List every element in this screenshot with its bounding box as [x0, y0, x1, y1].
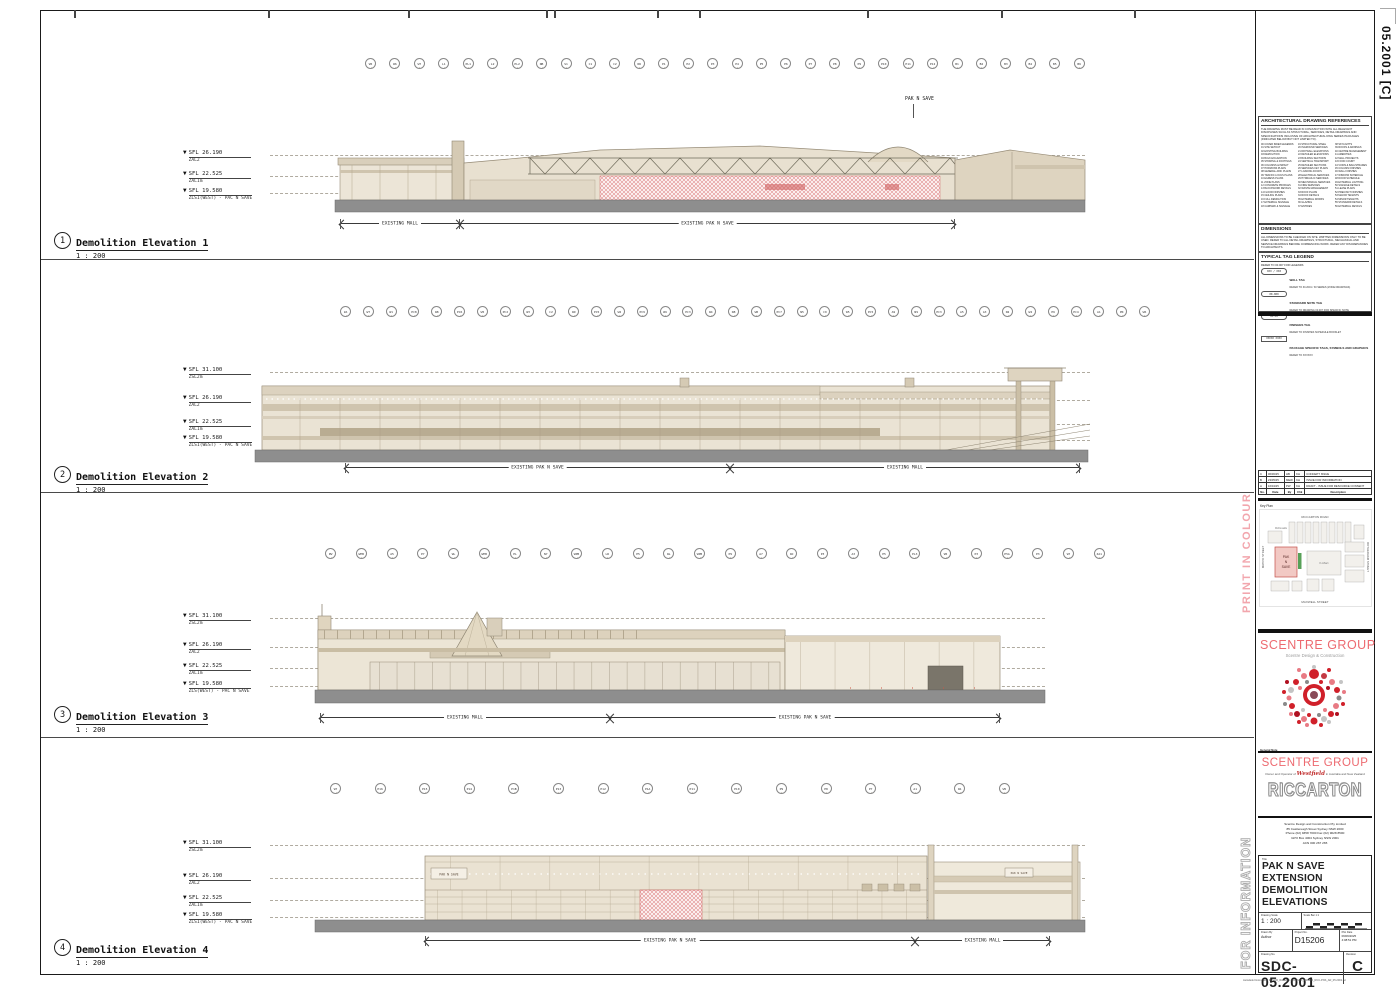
paknsave-sign-text: PAK N SAVE	[439, 873, 458, 877]
level-triangle-icon: ▼	[183, 642, 187, 648]
grid-bubble: L2	[487, 58, 498, 69]
view-scale: 1 : 200	[76, 486, 208, 494]
dim-tick	[954, 219, 955, 229]
grid-bubble: A3	[848, 548, 859, 559]
file-path-footer: Autodesk Docs://SDC D15206_Riccarton PNS…	[1243, 979, 1346, 982]
revision-row: No.DateByChkDescription	[1259, 489, 1372, 495]
grid-bubble: P13	[553, 783, 564, 794]
grid-bubble: A9	[888, 306, 899, 317]
scentre-group-logo: SCENTRE GROUP	[1260, 638, 1370, 652]
grid-bubble: ZA	[340, 306, 351, 317]
revision-cell: No.	[1259, 489, 1267, 495]
grid-bubble: N6	[634, 58, 645, 69]
level-triangle-icon: ▼	[183, 613, 187, 619]
grid-bubble: B3	[1000, 58, 1011, 69]
grid-bubble: C2	[609, 58, 620, 69]
level-marker: ▼ SFL 19.580 ZLS1(WEST) - PAC N SAVE	[183, 188, 252, 201]
references-list: 00 COVER INDEX/LEGENDS01 SITE SETOUT02 E…	[1261, 143, 1369, 208]
view-title: Demolition Elevation 3	[76, 712, 208, 725]
level-name: ZLS1(WEST) - PAC N SAVE	[189, 920, 253, 925]
dimension-label: EXISTING PAK N SAVE	[508, 465, 567, 470]
level-name: ZAL2	[189, 403, 251, 408]
view-title: Demolition Elevation 2	[76, 472, 208, 485]
registration-tick	[1134, 10, 1136, 18]
street-label-top: RICCARTON ROAD	[1301, 515, 1329, 519]
level-marker: ▼ SFL 19.580 ZLS(WEST) - PAC N SAVE	[183, 681, 251, 694]
registration-tick	[867, 10, 869, 18]
grid-bubble: W5	[999, 783, 1010, 794]
level-name: ZLS1(WEST) - PAC N SAVE	[189, 443, 253, 448]
elevation-3-title: 3 Demolition Elevation 3 1 : 200	[54, 705, 208, 734]
level-triangle-icon: ▼	[183, 395, 187, 401]
dimensions-note-section: DIMENSIONS ALL DIMENSIONS TO BE CHECKED …	[1258, 224, 1372, 252]
level-name: ZSL2m	[189, 375, 251, 380]
grid-bubble: W1	[386, 306, 397, 317]
level-marker: ▼ SFL 26.190 ZAL2	[183, 150, 251, 163]
level-triangle-icon: ▼	[183, 150, 187, 156]
registration-tick	[1001, 10, 1003, 18]
note-tag-icon: 00-000	[1261, 291, 1287, 298]
tag-desc: REFER TO FINISHES SCHEDULE BOOKLET	[1290, 331, 1342, 334]
grid-bubble: PC3	[682, 306, 693, 317]
grid-bubble: W6	[660, 306, 671, 317]
company-line: ACN 000 267 265	[1260, 841, 1370, 846]
registration-tick	[554, 10, 556, 18]
reference-item: 56 EXTERNAL DETAILS	[1335, 205, 1369, 208]
grid-bubble: P5	[879, 548, 890, 559]
tag-name: WALL TAG	[1290, 278, 1305, 282]
grid-bubble: A5	[956, 306, 967, 317]
wall-tag-icon: XXX / XXX	[1261, 268, 1287, 275]
view-scale: 1 : 200	[76, 959, 208, 967]
grid-bubble: N9	[911, 306, 922, 317]
level-name: ZSL2m	[189, 621, 251, 626]
grid-bubble: P12	[927, 58, 938, 69]
level-triangle-icon: ▼	[183, 367, 187, 373]
grid-bubble: PL1	[463, 58, 474, 69]
tag-name: STANDARD NOTE TAG	[1290, 301, 1323, 305]
level-triangle-icon: ▼	[183, 435, 187, 441]
ground-line	[315, 690, 1045, 703]
key-plan-label: Key Plan	[1260, 504, 1370, 508]
section-divider-bar	[1258, 629, 1372, 633]
tag-legend-item: XXX / XXX WALL TAG REFER TO 30.2001 / 30…	[1261, 268, 1369, 289]
annotation-leader	[913, 104, 914, 118]
elevation-2-title: 2 Demolition Elevation 2 1 : 200	[54, 465, 208, 494]
elevation-1-drawing	[325, 128, 1090, 214]
grid-bubble: P6	[1048, 306, 1059, 317]
view-title: Demolition Elevation 1	[76, 238, 208, 251]
tagline-pre: Owner and Operator of	[1265, 772, 1296, 776]
revision-label: Revision	[1346, 953, 1369, 956]
grid-bubble: PC9	[637, 306, 648, 317]
sheet-edge-label: 05.2001 [C]	[1379, 26, 1393, 100]
level-name: ZAL1m	[189, 903, 251, 908]
grid-bubble: PC5	[591, 306, 602, 317]
grid-bubble: C9	[819, 306, 830, 317]
grid-bubble: WC	[786, 548, 797, 559]
street-label-left: MATIPO STREET	[1261, 546, 1265, 569]
grid-bubble: S1	[561, 58, 572, 69]
view-number-bubble: 4	[54, 939, 71, 956]
section-divider-bar	[1258, 751, 1372, 753]
ground-line	[255, 450, 1088, 462]
grid-bubble: W7	[414, 58, 425, 69]
level-name: ZAL2	[189, 650, 251, 655]
grid-bubble: B4	[1025, 58, 1036, 69]
level-sfl: SFL 31.100	[189, 367, 251, 375]
level-sfl: SFL 31.100	[189, 613, 251, 621]
elevation-2-drawing	[248, 358, 1096, 466]
level-name: ZAL2	[189, 881, 251, 886]
grid-bubble: P3	[707, 58, 718, 69]
grid-bubble: PC3	[934, 306, 945, 317]
drawn-by-label: Drawn By	[1261, 931, 1290, 934]
pns-label: PAK	[1283, 555, 1290, 559]
extension-marker	[1298, 553, 1302, 569]
grid-bubble: B6	[1074, 58, 1085, 69]
drawn-by-value: Author	[1261, 935, 1290, 939]
level-triangle-icon: ▼	[183, 873, 187, 879]
grid-bubble: P4	[732, 58, 743, 69]
key-plan-map: RICCARTON ROAD MAXWELL STREET MATIPO STR…	[1259, 509, 1372, 607]
grid-bubble-row: W5W6W7L1PL1L2PL2NBS1C1C2N6P1P2P3P4P5P6P7…	[365, 58, 1085, 69]
revision-value: C	[1346, 958, 1369, 975]
grid-bubble: WPB	[356, 548, 367, 559]
grid-bubble-row: PWWPBA5P7WLWPBPLN7WPBLRP5WLWPBP9A7WCP3A3…	[325, 548, 1105, 559]
references-intro: THE DRAWING MUST BE READ IN CONJUNCTION …	[1261, 128, 1369, 142]
grid-bubble: W7	[1063, 548, 1074, 559]
grid-bubble: PC2	[500, 306, 511, 317]
tag-name: PACKAGE SPECIFIC TAGS, SYMBOLS AND GRAPH…	[1290, 346, 1369, 350]
reference-item: 18 CARPARK & SIGNAGE	[1261, 205, 1295, 208]
riccarton-logo: RICCARTON	[1260, 780, 1370, 800]
level-marker: ▼ SFL 26.190 ZAL2	[183, 642, 251, 655]
grid-bubble-row: ZAW7W1PC8W8PC6W5PC2W3C2W9PC5W2PC9W6PC3W4…	[340, 306, 1150, 317]
grid-bubble: W4	[1025, 306, 1036, 317]
dimension-existing-paknsave: EXISTING PAK N SAVE	[610, 717, 1000, 718]
grid-bubble: W5	[940, 548, 951, 559]
level-triangle-icon: ▼	[183, 681, 187, 687]
dome-roof	[868, 147, 928, 162]
sheet-title-line: ELEVATIONS	[1262, 897, 1368, 909]
grid-bubble: W5	[365, 58, 376, 69]
for-information-stamp: FOR INFORMATION	[1239, 837, 1253, 969]
street-label-right: ROTHERHAM STREET	[1366, 542, 1370, 572]
scale-bar	[1304, 922, 1368, 930]
scale-value: 1 : 200	[1261, 918, 1299, 925]
scentre-group-block: SCENTRE GROUP Scentre Design & Construct…	[1258, 636, 1372, 660]
grid-bubble: P16	[375, 783, 386, 794]
dim-tick	[425, 936, 426, 946]
grid-bubble: PL	[510, 548, 521, 559]
grid-bubble: WL	[663, 548, 674, 559]
company-address-block: Scentre Design and Construction Pty Limi…	[1258, 820, 1372, 847]
grid-bubble: N2	[1002, 306, 1013, 317]
level-name: ZLS(WEST) - PAC N SAVE	[189, 689, 251, 694]
section-divider-bar	[1258, 312, 1372, 316]
grid-bubble: ZA1	[1094, 548, 1105, 559]
grid-bubble: W6	[389, 58, 400, 69]
scale-label: Drawing Scale	[1261, 914, 1299, 917]
view-scale: 1 : 200	[76, 252, 208, 260]
grid-bubble: B1	[952, 58, 963, 69]
grid-bubble: PR	[1116, 306, 1127, 317]
grid-bubble: PL3	[909, 548, 920, 559]
dimension-label: EXISTING MALL	[962, 938, 1004, 943]
pak-n-save-annotation: PAK N SAVE	[905, 97, 934, 102]
registration-tick	[74, 10, 76, 18]
level-triangle-icon: ▼	[183, 188, 187, 194]
level-sfl: SFL 26.190	[189, 150, 251, 158]
corner-mark	[1380, 8, 1396, 24]
level-sfl: SFL 31.100	[189, 840, 251, 848]
panel-separator	[41, 492, 1254, 493]
grid-bubble: N7	[540, 548, 551, 559]
plot-time: 4:08:51 PM	[1342, 938, 1357, 942]
grid-bubble: PC6	[454, 306, 465, 317]
view-scale: 1 : 200	[76, 726, 208, 734]
references-heading: ARCHITECTURAL DRAWING REFERENCES	[1261, 119, 1369, 126]
dimension-label: EXISTING PAK N SAVE	[641, 938, 700, 943]
dim-tick	[1079, 463, 1080, 473]
grid-bubble: W2	[614, 306, 625, 317]
dimension-existing-mall: EXISTING MALL	[340, 223, 460, 224]
registration-tick	[657, 10, 659, 18]
dimension-label: EXISTING MALL	[884, 465, 926, 470]
grid-bubble: W4	[705, 306, 716, 317]
print-in-colour-text: PRINT IN COLOUR	[1241, 493, 1253, 613]
view-number-bubble: 3	[54, 706, 71, 723]
level-triangle-icon: ▼	[183, 895, 187, 901]
registration-tick	[546, 10, 548, 18]
dimension-label: EXISTING PAK N SAVE	[678, 221, 737, 226]
tag-name: FINISHES TAG	[1290, 323, 1311, 327]
level-name: ZAL1m	[189, 179, 251, 184]
grid-bubble: P1	[658, 58, 669, 69]
grid-bubble: W6	[1139, 306, 1150, 317]
level-name: ZLS1(WEST) - PAC N SAVE	[189, 196, 253, 201]
grid-bubble: P7	[865, 783, 876, 794]
grid-bubble: P7	[417, 548, 428, 559]
level-marker: ▼ SFL 31.100 ZSL2m	[183, 367, 251, 380]
grid-bubble: P15	[419, 783, 430, 794]
grid-bubble: P5	[633, 548, 644, 559]
level-name: ZAL2	[189, 158, 251, 163]
grid-bubble: N8	[728, 306, 739, 317]
dimension-existing-mall: EXISTING MALL	[915, 940, 1050, 941]
pns-label: SAVE	[1282, 565, 1292, 569]
grid-bubble: P9	[854, 58, 865, 69]
grid-bubble: PL2	[512, 58, 523, 69]
grid-bubble: WPB	[479, 548, 490, 559]
grid-bubble: P1B	[508, 783, 519, 794]
grid-bubble: W0	[751, 306, 762, 317]
kmart-label: K-Mart	[1320, 561, 1329, 565]
level-name: ZAL1m	[189, 671, 251, 676]
tag-legend-section: TYPICAL TAG LEGEND REFER TO 00.007 FOR L…	[1258, 252, 1372, 312]
revision-cell: Description	[1305, 489, 1372, 495]
dimension-existing-mall: EXISTING MALL	[320, 717, 610, 718]
grid-bubble: W9	[568, 306, 579, 317]
tag-legend-item: 00-000 STANDARD NOTE TAG REFER TO DRAWIN…	[1261, 291, 1369, 312]
level-sfl: SFL 19.580	[189, 188, 253, 196]
grid-bubble: WPB	[571, 548, 582, 559]
grid-bubble: PC7	[774, 306, 785, 317]
dim-tick	[345, 463, 346, 473]
elevation-3-drawing	[288, 602, 1050, 706]
grid-bubble: P12	[598, 783, 609, 794]
revision-table: C06/06/25HBKHCONCEPT ISSUEB23/05/25MEWKH…	[1258, 470, 1372, 495]
title-block: Title PAK N SAVE EXTENSION DEMOLITION EL…	[1258, 855, 1372, 973]
grid-bubble-row: W7P16P15P14P1BP13P12P1AP11P10P9P8P7A1W1W…	[330, 783, 1010, 794]
panel-separator	[41, 737, 1254, 738]
level-sfl: SFL 19.580	[189, 912, 253, 920]
grid-bubble: NB	[536, 58, 547, 69]
grid-bubble: P6	[780, 58, 791, 69]
level-marker: ▼ SFL 26.190 ZAL2	[183, 873, 251, 886]
dimensions-text: ALL DIMENSIONS TO BE CHECKED ON SITE. WR…	[1261, 236, 1369, 250]
tag-legend-item: XX-XX FINISHES TAG REFER TO FINISHES SCH…	[1261, 313, 1369, 334]
dimension-label: EXISTING MALL	[444, 715, 486, 720]
level-sfl: SFL 22.525	[189, 663, 251, 671]
grid-bubble: P14	[464, 783, 475, 794]
revision-cell: By	[1284, 489, 1294, 495]
scentre-group-logo: SCENTRE GROUP	[1260, 757, 1370, 769]
level-marker: ▼ SFL 22.525 ZAL1m	[183, 171, 251, 184]
grid-bubble: PC5	[865, 306, 876, 317]
reference-item: 37 ENTRIES	[1298, 205, 1332, 208]
tag-desc: REFER TO 30.2001 / 30 SERIES (ZONE DRAWI…	[1290, 286, 1351, 289]
level-marker: ▼ SFL 31.100 ZSL2m	[183, 840, 251, 853]
tagline-post: in Australia and New Zealand	[1326, 772, 1365, 776]
level-triangle-icon: ▼	[183, 663, 187, 669]
dimensions-heading: DIMENSIONS	[1261, 227, 1369, 234]
dimension-label: EXISTING MALL	[379, 221, 421, 226]
dimension-existing-paknsave: EXISTING PAK N SAVE	[345, 467, 730, 468]
grid-bubble: L1	[438, 58, 449, 69]
ground-line	[315, 920, 1085, 932]
dim-tick	[320, 713, 321, 723]
grid-bubble: P5	[756, 58, 767, 69]
dimension-existing-paknsave: EXISTING PAK N SAVE	[425, 940, 915, 941]
grid-bubble: W8	[431, 306, 442, 317]
section-divider-bar	[1258, 498, 1372, 501]
panel-separator	[41, 259, 1254, 260]
grid-bubble: P1A	[642, 783, 653, 794]
street-label-bottom: MAXWELL STREET	[1301, 600, 1328, 604]
grid-bubble: W5	[842, 306, 853, 317]
westfield-logo: Westfield	[1297, 771, 1325, 777]
sheet-title-line: DEMOLITION	[1262, 885, 1368, 897]
demolition-hatch	[640, 890, 702, 920]
dimension-label: EXISTING PAK N SAVE	[776, 715, 835, 720]
grid-bubble: A1	[910, 783, 921, 794]
level-sfl: SFL 22.525	[189, 171, 251, 179]
level-triangle-icon: ▼	[183, 419, 187, 425]
drawing-no-label: Drawing No.	[1261, 953, 1341, 956]
colour-test-logo	[1279, 660, 1351, 734]
grid-bubble: PC8	[408, 306, 419, 317]
view-number-bubble: 2	[54, 466, 71, 483]
tag-desc: REFER TO XXXXXX	[1290, 354, 1369, 357]
grid-bubble: PW	[325, 548, 336, 559]
scentre-sub-label: Scentre Design & Construction	[1260, 653, 1370, 658]
bullseye-center	[1310, 691, 1318, 699]
level-marker: ▼ SFL 26.190 ZAL2	[183, 395, 251, 408]
tag-legend-heading: TYPICAL TAG LEGEND	[1261, 255, 1369, 262]
grid-bubble: C1	[585, 58, 596, 69]
grid-bubble: P3	[971, 548, 982, 559]
level-sfl: SFL 22.525	[189, 419, 251, 427]
tag-legend-sub: REFER TO 00.007 FOR LEGENDS	[1261, 264, 1369, 268]
mall-sign-text: PAK N SAVE	[1011, 871, 1028, 875]
dimension-existing-mall: EXISTING MALL	[730, 467, 1080, 468]
revision-cell: Chk	[1295, 489, 1305, 495]
grid-bubble: A5	[387, 548, 398, 559]
elevation-1-title: 1 Demolition Elevation 1 1 : 200	[54, 231, 208, 260]
grid-bubble: P5A	[1002, 548, 1013, 559]
grid-bubble: P3	[817, 548, 828, 559]
level-sfl: SFL 26.190	[189, 395, 251, 403]
grid-bubble: WPB	[694, 548, 705, 559]
level-triangle-icon: ▼	[183, 171, 187, 177]
grid-bubble: W3	[523, 306, 534, 317]
grid-bubble: A7	[756, 548, 767, 559]
level-sfl: SFL 26.190	[189, 642, 251, 650]
grid-bubble: P11	[687, 783, 698, 794]
level-triangle-icon: ▼	[183, 840, 187, 846]
grid-bubble: W5	[477, 306, 488, 317]
scentre-westfield-block: SCENTRE GROUP Owner and Operator of West…	[1258, 755, 1372, 801]
mcdonalds-label: McDonalds	[1275, 527, 1288, 530]
grid-bubble: P10	[878, 58, 889, 69]
package-tag-icon: XXXXX XXXX	[1261, 336, 1287, 343]
scale-bar-label: Scale Bar 1:1	[1304, 914, 1369, 917]
drawing-no-value: SDC-05.2001	[1261, 958, 1341, 989]
level-marker: ▼ SFL 19.580 ZLS1(WEST) - PAC N SAVE	[183, 435, 252, 448]
level-marker: ▼ SFL 22.525 ZAL1m	[183, 895, 251, 908]
level-marker: ▼ SFL 22.525 ZAL1m	[183, 663, 251, 676]
sidebar: ARCHITECTURAL DRAWING REFERENCES THE DRA…	[1256, 10, 1375, 975]
registration-tick	[408, 10, 410, 18]
grid-bubble: N5	[797, 306, 808, 317]
grid-bubble: P3	[1032, 548, 1043, 559]
grid-bubble: P2	[683, 58, 694, 69]
revision-cell: Date	[1266, 489, 1284, 495]
tag-legend-item: XXXXX XXXX PACKAGE SPECIFIC TAGS, SYMBOL…	[1261, 336, 1369, 357]
grid-bubble: A3	[979, 306, 990, 317]
grid-bubble: B5	[1049, 58, 1060, 69]
level-marker: ▼ SFL 19.580 ZLS1(WEST) - PAC N SAVE	[183, 912, 252, 925]
level-sfl: SFL 22.525	[189, 895, 251, 903]
grid-bubble: A1	[1093, 306, 1104, 317]
registration-tick	[268, 10, 270, 18]
dimension-existing-paknsave: EXISTING PAK N SAVE	[460, 223, 955, 224]
grid-bubble: W7	[330, 783, 341, 794]
ground-line	[335, 200, 1085, 212]
grid-bubble: P7	[805, 58, 816, 69]
roller-door	[928, 666, 963, 690]
registration-tick	[699, 10, 701, 18]
grid-bubble: PC4	[1071, 306, 1082, 317]
grid-bubble: LR	[602, 548, 613, 559]
grid-bubble: P9	[725, 548, 736, 559]
grid-bubble: P10	[731, 783, 742, 794]
mall-structure	[340, 163, 462, 200]
elevation-4-title: 4 Demolition Elevation 4 1 : 200	[54, 938, 208, 967]
elevation-4-drawing: PAK N SAVE PAK N SAVE	[298, 838, 1090, 936]
